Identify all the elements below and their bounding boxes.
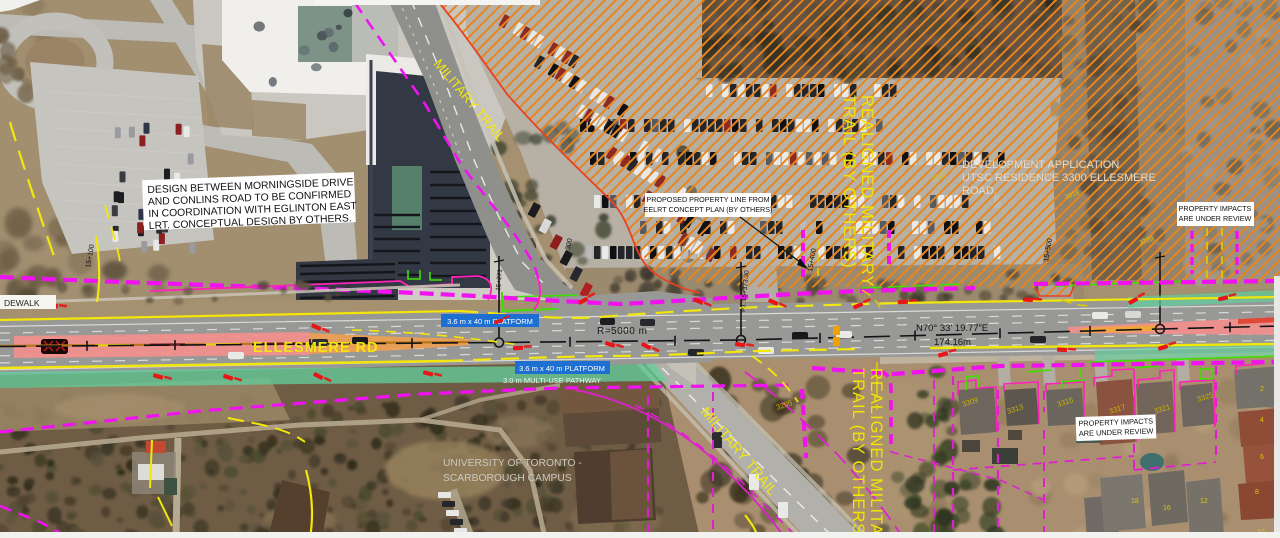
svg-text:DEVELOPMENT APPLICATION: DEVELOPMENT APPLICATION	[962, 159, 1119, 171]
svg-text:N70° 33’ 19.77”E: N70° 33’ 19.77”E	[916, 323, 988, 334]
svg-text:EELRT CONCEPT PLAN (BY OTHERS): EELRT CONCEPT PLAN (BY OTHERS)	[644, 205, 773, 214]
svg-text:UNIVERSITY OF TORONTO -: UNIVERSITY OF TORONTO -	[443, 458, 582, 469]
svg-text:REALIGNED MILITARY: REALIGNED MILITARY	[858, 95, 876, 288]
svg-text:PROPERTY IMPACTS: PROPERTY IMPACTS	[1179, 204, 1252, 213]
svg-text:174.16m: 174.16m	[934, 337, 971, 348]
svg-text:4: 4	[1260, 417, 1264, 424]
svg-text:PROPOSED PROPERTY LINE FROM: PROPOSED PROPERTY LINE FROM	[646, 195, 769, 204]
svg-text:SCARBOROUGH CAMPUS: SCARBOROUGH CAMPUS	[443, 473, 572, 484]
svg-text:12: 12	[1200, 498, 1208, 505]
svg-text:REALIGNED MILITARY: REALIGNED MILITARY	[867, 368, 885, 538]
svg-text:TRAIL (BY OTHERS): TRAIL (BY OTHERS)	[840, 95, 858, 269]
svg-text:2: 2	[1260, 386, 1264, 393]
svg-text:3.6 m x 40 m PLATFORM: 3.6 m x 40 m PLATFORM	[447, 317, 533, 326]
svg-text:8: 8	[1255, 489, 1259, 496]
svg-text:UTSC RESIDENCE 3300 ELLESMERE: UTSC RESIDENCE 3300 ELLESMERE	[962, 172, 1156, 184]
svg-text:3.0 m MULTI-USE PATHWAY: 3.0 m MULTI-USE PATHWAY	[503, 376, 601, 385]
svg-text:ROAD.: ROAD.	[962, 185, 997, 197]
svg-text:3.6 m x 40 m PLATFORM: 3.6 m x 40 m PLATFORM	[519, 364, 605, 373]
svg-text:6: 6	[1260, 454, 1264, 461]
svg-text:R=5000 m: R=5000 m	[597, 326, 647, 337]
svg-text:18: 18	[1131, 498, 1139, 505]
svg-text:16: 16	[1163, 505, 1171, 512]
svg-text:DEWALK: DEWALK	[4, 298, 40, 308]
svg-text:ELLESMERE RD: ELLESMERE RD	[253, 340, 379, 356]
svg-text:TRAIL (BY OTHERS): TRAIL (BY OTHERS)	[849, 368, 867, 538]
svg-text:ARE UNDER REVIEW: ARE UNDER REVIEW	[1179, 214, 1252, 223]
